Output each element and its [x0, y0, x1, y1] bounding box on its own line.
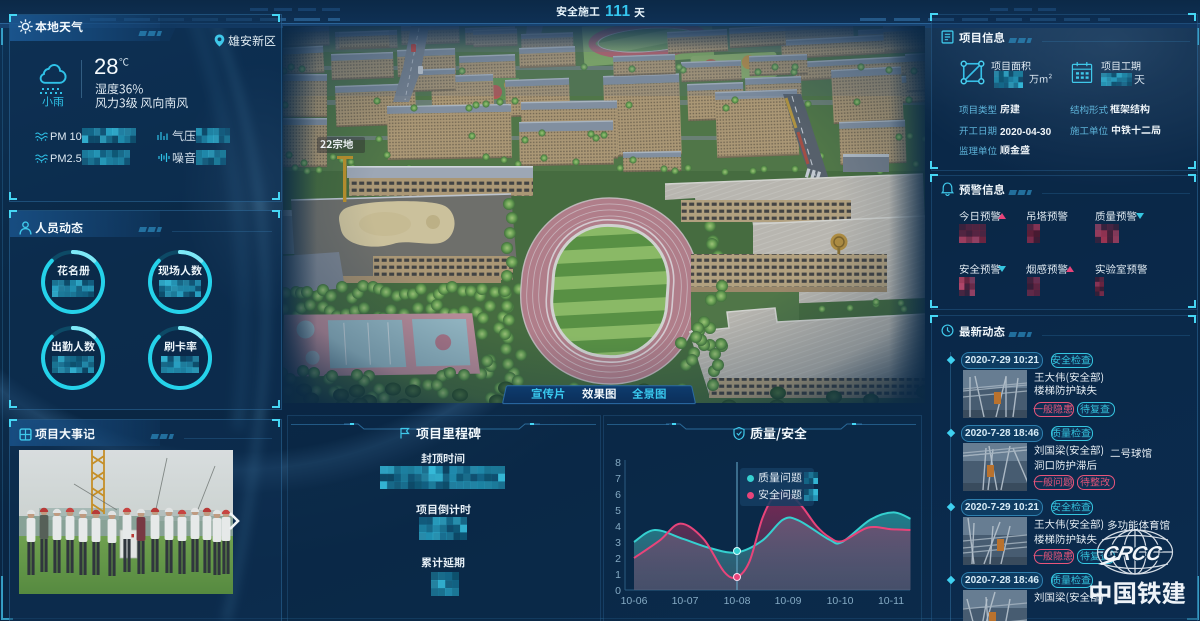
svg-text:10-06: 10-06	[621, 595, 648, 607]
svg-text:1: 1	[615, 569, 621, 581]
svg-text:8: 8	[615, 457, 621, 469]
svg-text:10-07: 10-07	[672, 595, 699, 607]
svg-text:6: 6	[615, 489, 621, 501]
svg-text:3: 3	[615, 537, 621, 549]
svg-text:10-08: 10-08	[724, 595, 751, 607]
svg-text:7: 7	[615, 473, 621, 485]
svg-text:2: 2	[615, 553, 621, 565]
svg-text:5: 5	[615, 505, 621, 517]
svg-text:10-11: 10-11	[878, 595, 904, 607]
svg-text:10-10: 10-10	[827, 595, 854, 607]
svg-text:10-09: 10-09	[775, 595, 802, 607]
svg-text:4: 4	[615, 521, 621, 533]
